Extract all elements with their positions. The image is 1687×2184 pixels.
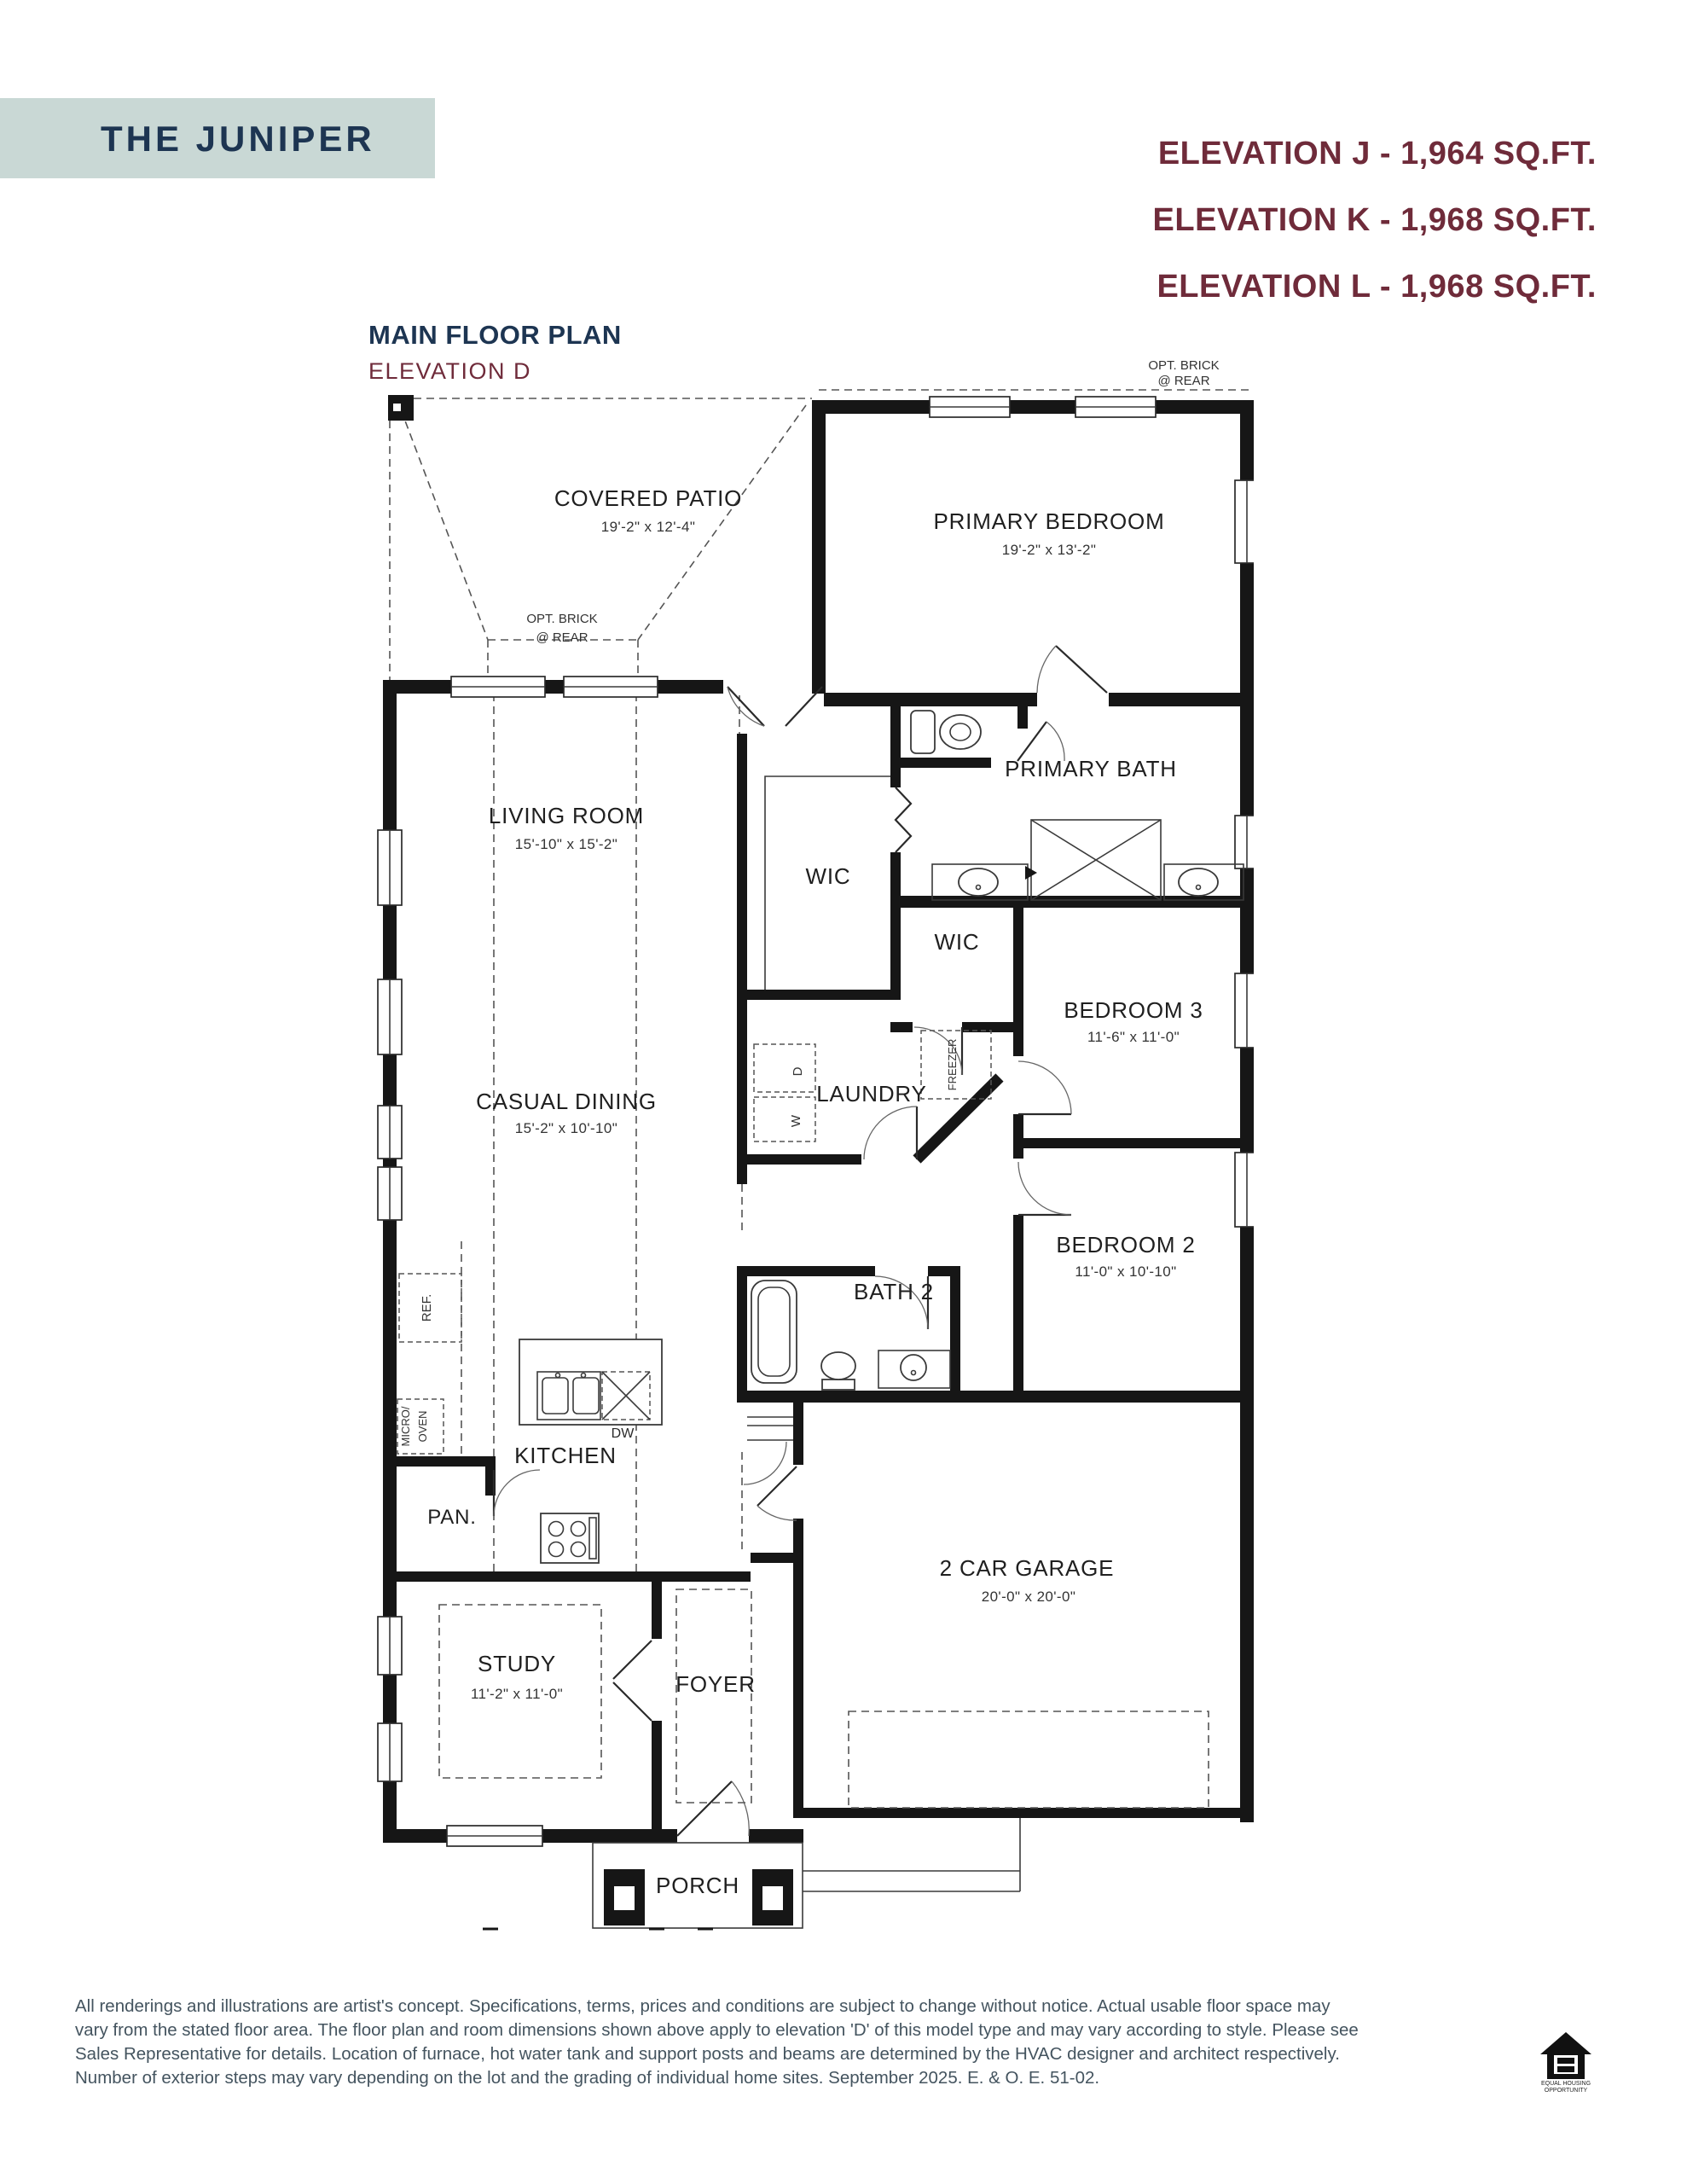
floor-plan-drawing: OPT. BRICK @ REAR COVERED PATIO 19'-2" x… (367, 346, 1254, 1941)
room-label-garage: 2 CAR GARAGE (940, 1555, 1115, 1581)
room-label-wic-1: WIC (806, 863, 851, 889)
room-dims-casual-dining: 15'-2" x 10'-10" (515, 1120, 617, 1136)
disclaimer-line: vary from the stated floor area. The flo… (75, 2018, 1620, 2042)
model-title: THE JUNIPER (101, 119, 375, 160)
floor-plan: OPT. BRICK @ REAR COVERED PATIO 19'-2" x… (367, 346, 1254, 1941)
walls (383, 395, 1254, 1843)
opt-brick-note-patio-2: @ REAR (536, 630, 588, 645)
room-label-bedroom-3: BEDROOM 3 (1064, 997, 1203, 1023)
disclaimer-line: All renderings and illustrations are art… (75, 1995, 1620, 2018)
room-label-casual-dining: CASUAL DINING (476, 1089, 657, 1114)
disclaimer-line: Number of exterior steps may vary depend… (75, 2066, 1620, 2090)
svg-text:OPPORTUNITY: OPPORTUNITY (1545, 2088, 1588, 2093)
opt-brick-note-top-2: @ REAR (1157, 374, 1209, 388)
room-dims-primary-bedroom: 19'-2" x 13'-2" (1002, 542, 1097, 558)
room-label-bath-2: BATH 2 (854, 1279, 934, 1304)
dryer-label: D (791, 1066, 805, 1076)
elevation-list: ELEVATION J - 1,964 SQ.FT. ELEVATION K -… (1153, 120, 1597, 320)
microwave-label: MICRO/ (399, 1406, 412, 1446)
disclaimer-line: Sales Representative for details. Locati… (75, 2042, 1620, 2066)
opt-brick-note-top: OPT. BRICK (1148, 358, 1219, 373)
elevation-line: ELEVATION J - 1,964 SQ.FT. (1153, 120, 1597, 187)
brochure-page: THE JUNIPER ELEVATION J - 1,964 SQ.FT. E… (0, 0, 1687, 2184)
elevation-line: ELEVATION K - 1,968 SQ.FT. (1153, 187, 1597, 253)
refrigerator-label: REF. (420, 1294, 434, 1322)
disclaimer: All renderings and illustrations are art… (75, 1995, 1620, 2090)
oven-label: OVEN (416, 1411, 429, 1443)
model-title-box: THE JUNIPER (0, 98, 435, 178)
room-label-pantry: PAN. (427, 1506, 476, 1529)
room-label-bedroom-2: BEDROOM 2 (1056, 1232, 1195, 1258)
dishwasher-label: DW (612, 1426, 635, 1441)
primary-bath-fixtures (911, 711, 1244, 900)
room-label-primary-bath: PRIMARY BATH (1005, 756, 1177, 781)
room-label-study: STUDY (478, 1651, 556, 1676)
elevation-line: ELEVATION L - 1,968 SQ.FT. (1153, 253, 1597, 320)
washer-label: W (789, 1114, 803, 1127)
room-dims-study: 11'-2" x 11'-0" (471, 1686, 563, 1702)
room-dims-bedroom-3: 11'-6" x 11'-0" (1087, 1029, 1180, 1045)
room-label-covered-patio: COVERED PATIO (554, 485, 742, 511)
room-dims-covered-patio: 19'-2" x 12'-4" (601, 519, 696, 535)
room-label-kitchen: KITCHEN (514, 1443, 617, 1468)
room-label-wic-2: WIC (935, 929, 980, 955)
room-label-porch: PORCH (656, 1873, 739, 1898)
room-label-laundry: LAUNDRY (816, 1081, 926, 1107)
room-label-foyer: FOYER (675, 1671, 756, 1697)
room-dims-living-room: 15'-10" x 15'-2" (515, 836, 617, 852)
room-label-primary-bedroom: PRIMARY BEDROOM (933, 508, 1164, 534)
freezer-label: FREEZER (946, 1039, 959, 1091)
opt-brick-note-patio: OPT. BRICK (526, 612, 597, 626)
svg-text:EQUAL HOUSING: EQUAL HOUSING (1541, 2081, 1591, 2087)
room-dims-garage: 20'-0" x 20'-0" (982, 1589, 1076, 1605)
room-dims-bedroom-2: 11'-0" x 10'-10" (1075, 1263, 1176, 1280)
equal-housing-opportunity-icon: EQUAL HOUSING OPPORTUNITY (1539, 2031, 1593, 2093)
room-label-living-room: LIVING ROOM (489, 803, 644, 828)
